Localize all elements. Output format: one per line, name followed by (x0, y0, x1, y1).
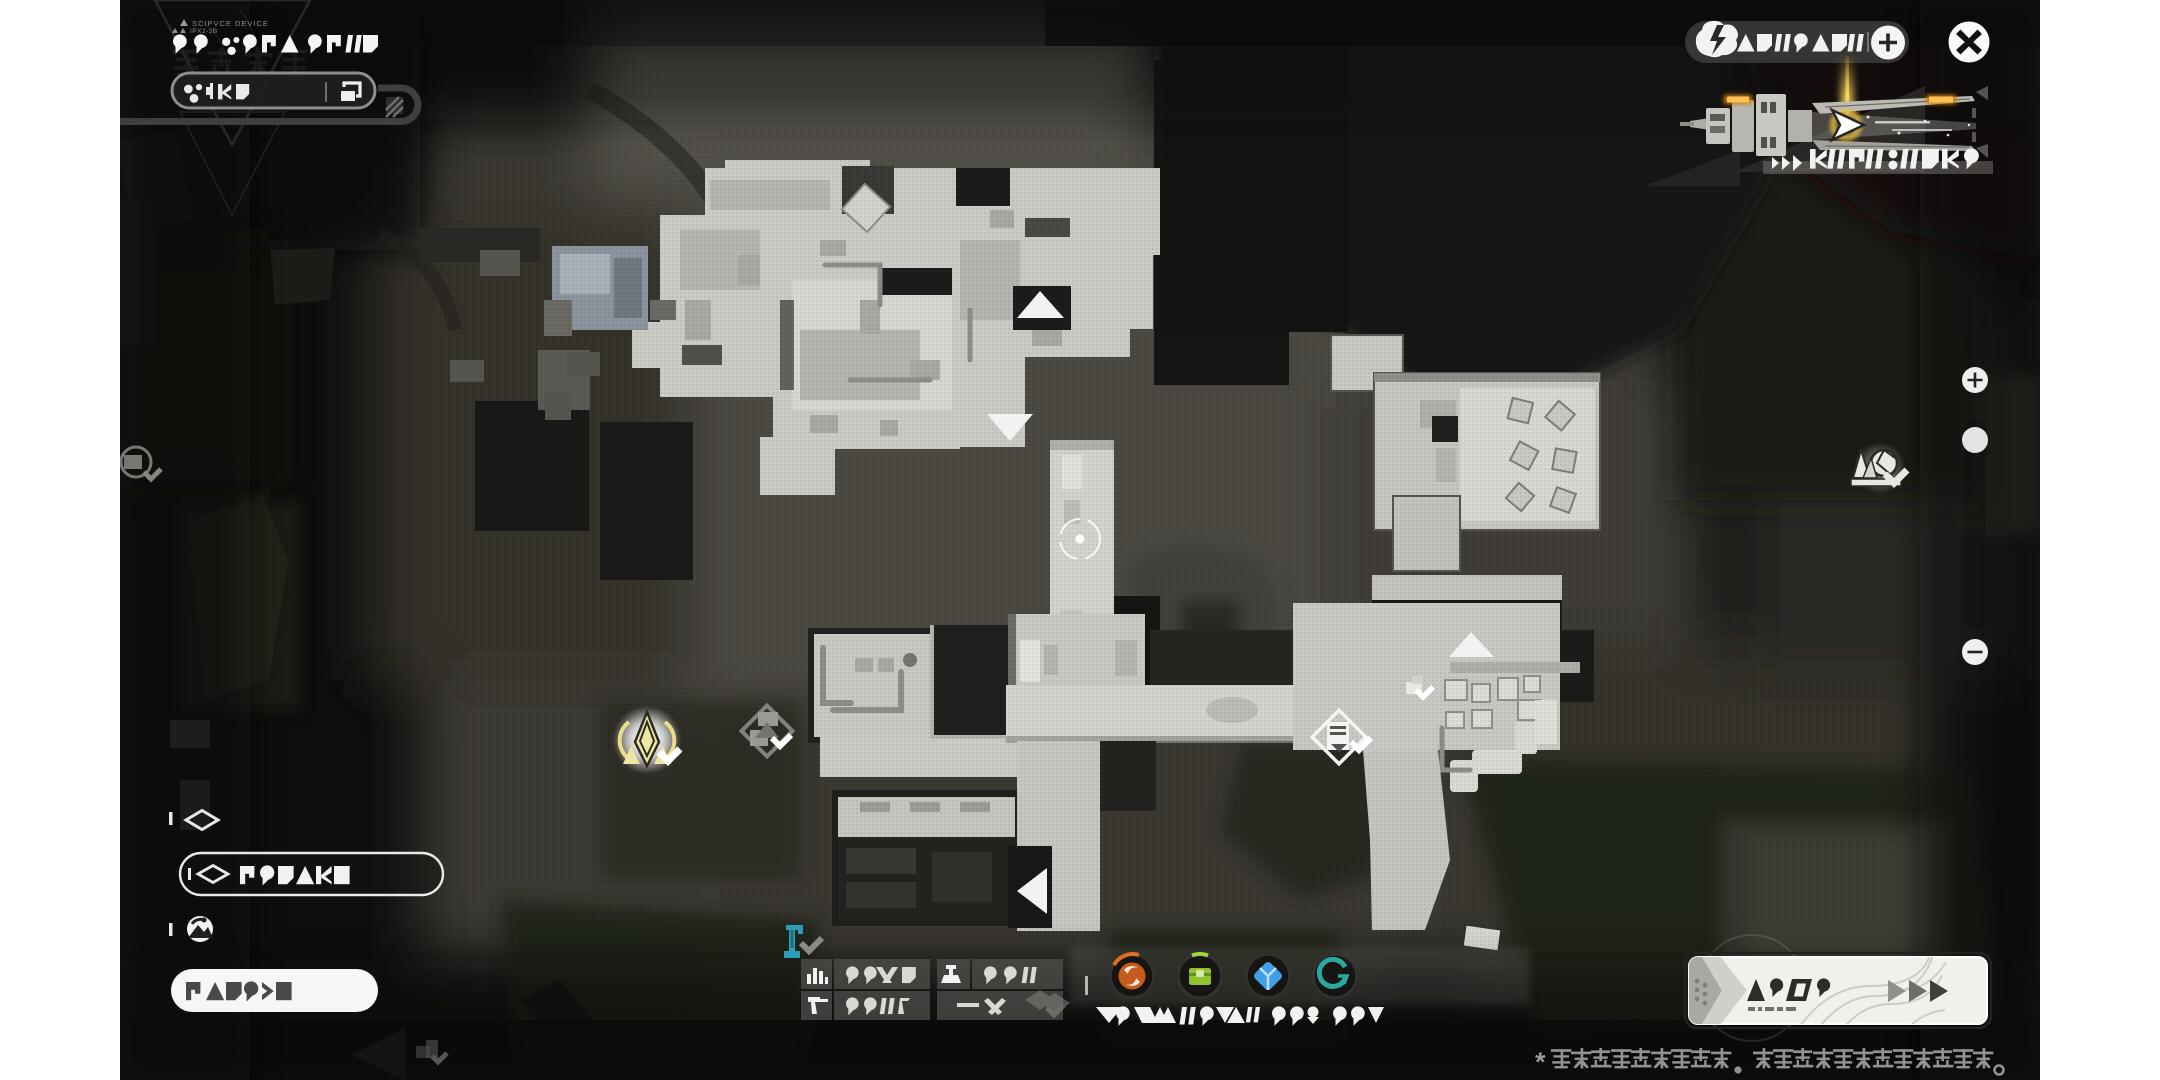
svg-text:IPX2-2B: IPX2-2B (190, 28, 218, 35)
svg-text:*: * (1535, 1047, 1546, 1077)
svg-text:SCIPVCE DEVICE: SCIPVCE DEVICE (192, 19, 269, 28)
